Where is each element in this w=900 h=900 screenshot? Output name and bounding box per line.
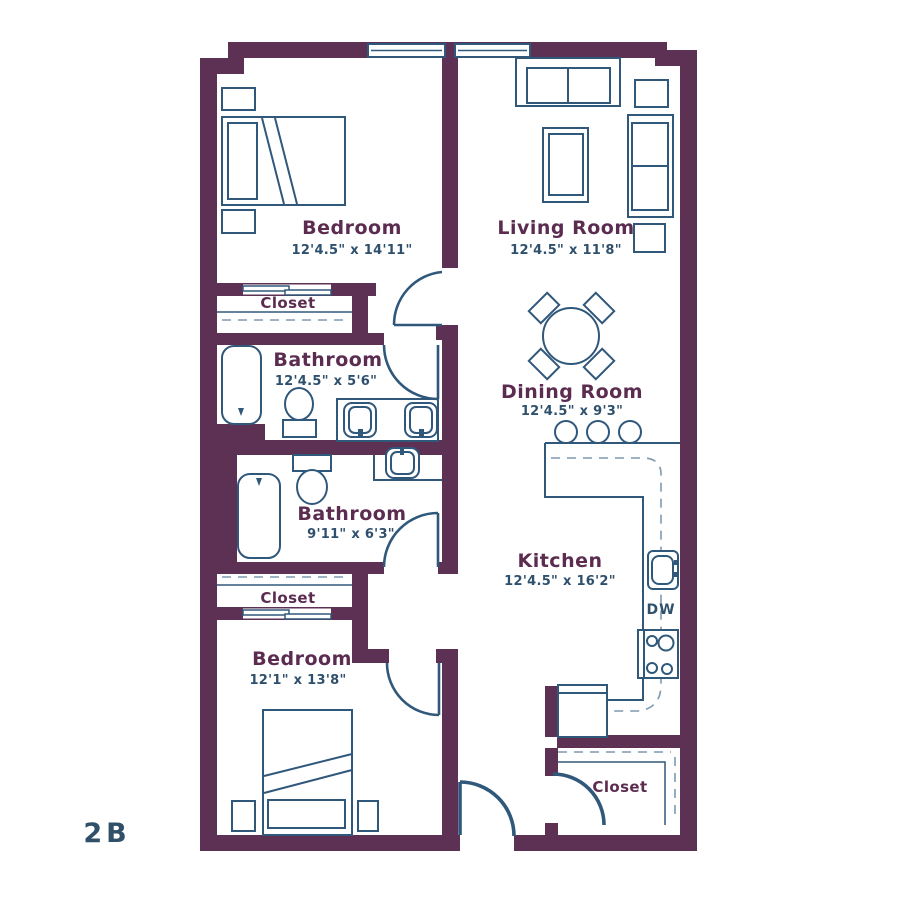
window	[368, 44, 445, 57]
bedroom2-label: Bedroom	[252, 648, 352, 670]
nightstand	[232, 801, 255, 831]
dining-furniture	[529, 293, 614, 379]
floor-plan-page: Bedroom 12'4.5" x 14'11" Living Room 12'…	[0, 0, 900, 900]
closet1-interior	[217, 312, 352, 320]
bedroom2-furniture	[232, 710, 378, 835]
dishwasher-label: DW	[646, 602, 675, 618]
bathroom1-dims: 12'4.5" x 5'6"	[275, 374, 377, 389]
bedroom1-label: Bedroom	[302, 217, 402, 239]
bed-headboard	[228, 123, 257, 199]
bathroom2-dims: 9'11" x 6'3"	[307, 527, 395, 542]
toilet	[297, 470, 327, 504]
bar-stool	[587, 421, 609, 443]
closet1-label: Closet	[260, 294, 315, 312]
bed	[222, 117, 345, 205]
bathroom1-label: Bathroom	[273, 349, 382, 371]
toilet-tank	[293, 455, 331, 471]
chair	[584, 293, 614, 323]
toilet	[285, 388, 313, 420]
closet2-label: Closet	[260, 589, 315, 607]
bedroom1-furniture	[222, 88, 345, 233]
window	[455, 44, 530, 57]
chair	[529, 349, 559, 379]
closet-sliding-door	[243, 609, 331, 620]
bar-stool	[555, 421, 577, 443]
chair	[584, 349, 614, 379]
bathroom2-label: Bathroom	[297, 503, 406, 525]
dining-table	[543, 308, 599, 364]
kitchen-label: Kitchen	[517, 550, 602, 572]
dining-dims: 12'4.5" x 9'3"	[521, 404, 623, 419]
bedroom1-dims: 12'4.5" x 14'11"	[291, 243, 412, 258]
nightstand	[222, 88, 255, 110]
bedroom2-door	[387, 663, 439, 715]
entry-door	[460, 782, 514, 836]
unit-label: 2B	[83, 818, 130, 849]
living-dims: 12'4.5" x 11'8"	[510, 243, 622, 258]
dining-label: Dining Room	[501, 381, 643, 403]
chair	[529, 293, 559, 323]
living-label: Living Room	[497, 217, 634, 239]
kitchen-dims: 12'4.5" x 16'2"	[504, 574, 616, 589]
bed-headboard	[268, 800, 345, 828]
closet2-interior	[217, 577, 352, 585]
bathroom1-door	[384, 345, 438, 399]
floor-plan-svg: Bedroom 12'4.5" x 14'11" Living Room 12'…	[0, 0, 900, 900]
closet3-label: Closet	[592, 778, 647, 796]
bar-stool	[619, 421, 641, 443]
bathtub	[238, 474, 280, 558]
bedroom2-dims: 12'1" x 13'8"	[249, 673, 346, 688]
nightstand	[222, 210, 255, 233]
side-table	[635, 80, 668, 107]
side-table	[634, 224, 665, 252]
nightstand	[358, 801, 378, 831]
bedroom1-door	[394, 272, 442, 325]
